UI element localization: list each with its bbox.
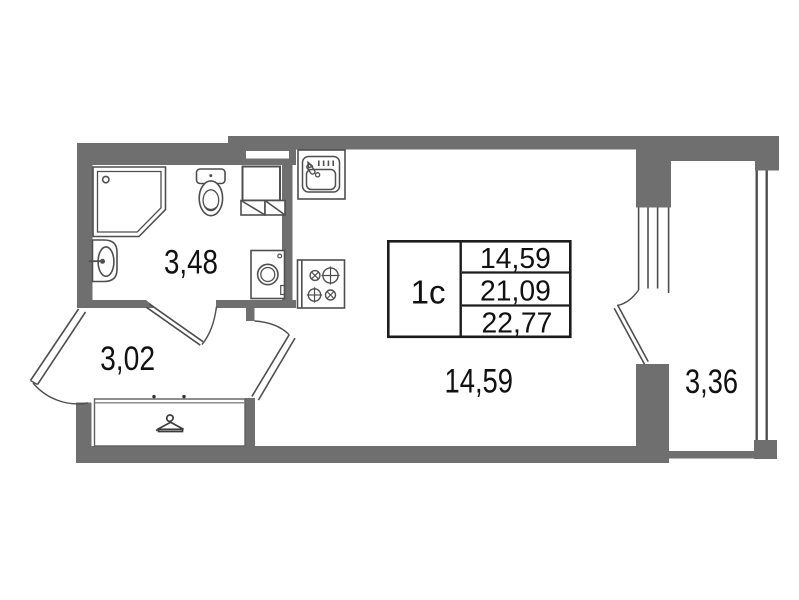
svg-text:22,77: 22,77 xyxy=(482,306,553,338)
svg-text:3,36: 3,36 xyxy=(685,363,738,401)
svg-text:21,09: 21,09 xyxy=(480,274,551,306)
svg-text:1c: 1c xyxy=(411,273,446,310)
svg-text:3,48: 3,48 xyxy=(164,243,218,281)
svg-text:14,59: 14,59 xyxy=(480,242,551,274)
svg-text:3,02: 3,02 xyxy=(100,340,155,378)
svg-text:14,59: 14,59 xyxy=(445,363,514,401)
